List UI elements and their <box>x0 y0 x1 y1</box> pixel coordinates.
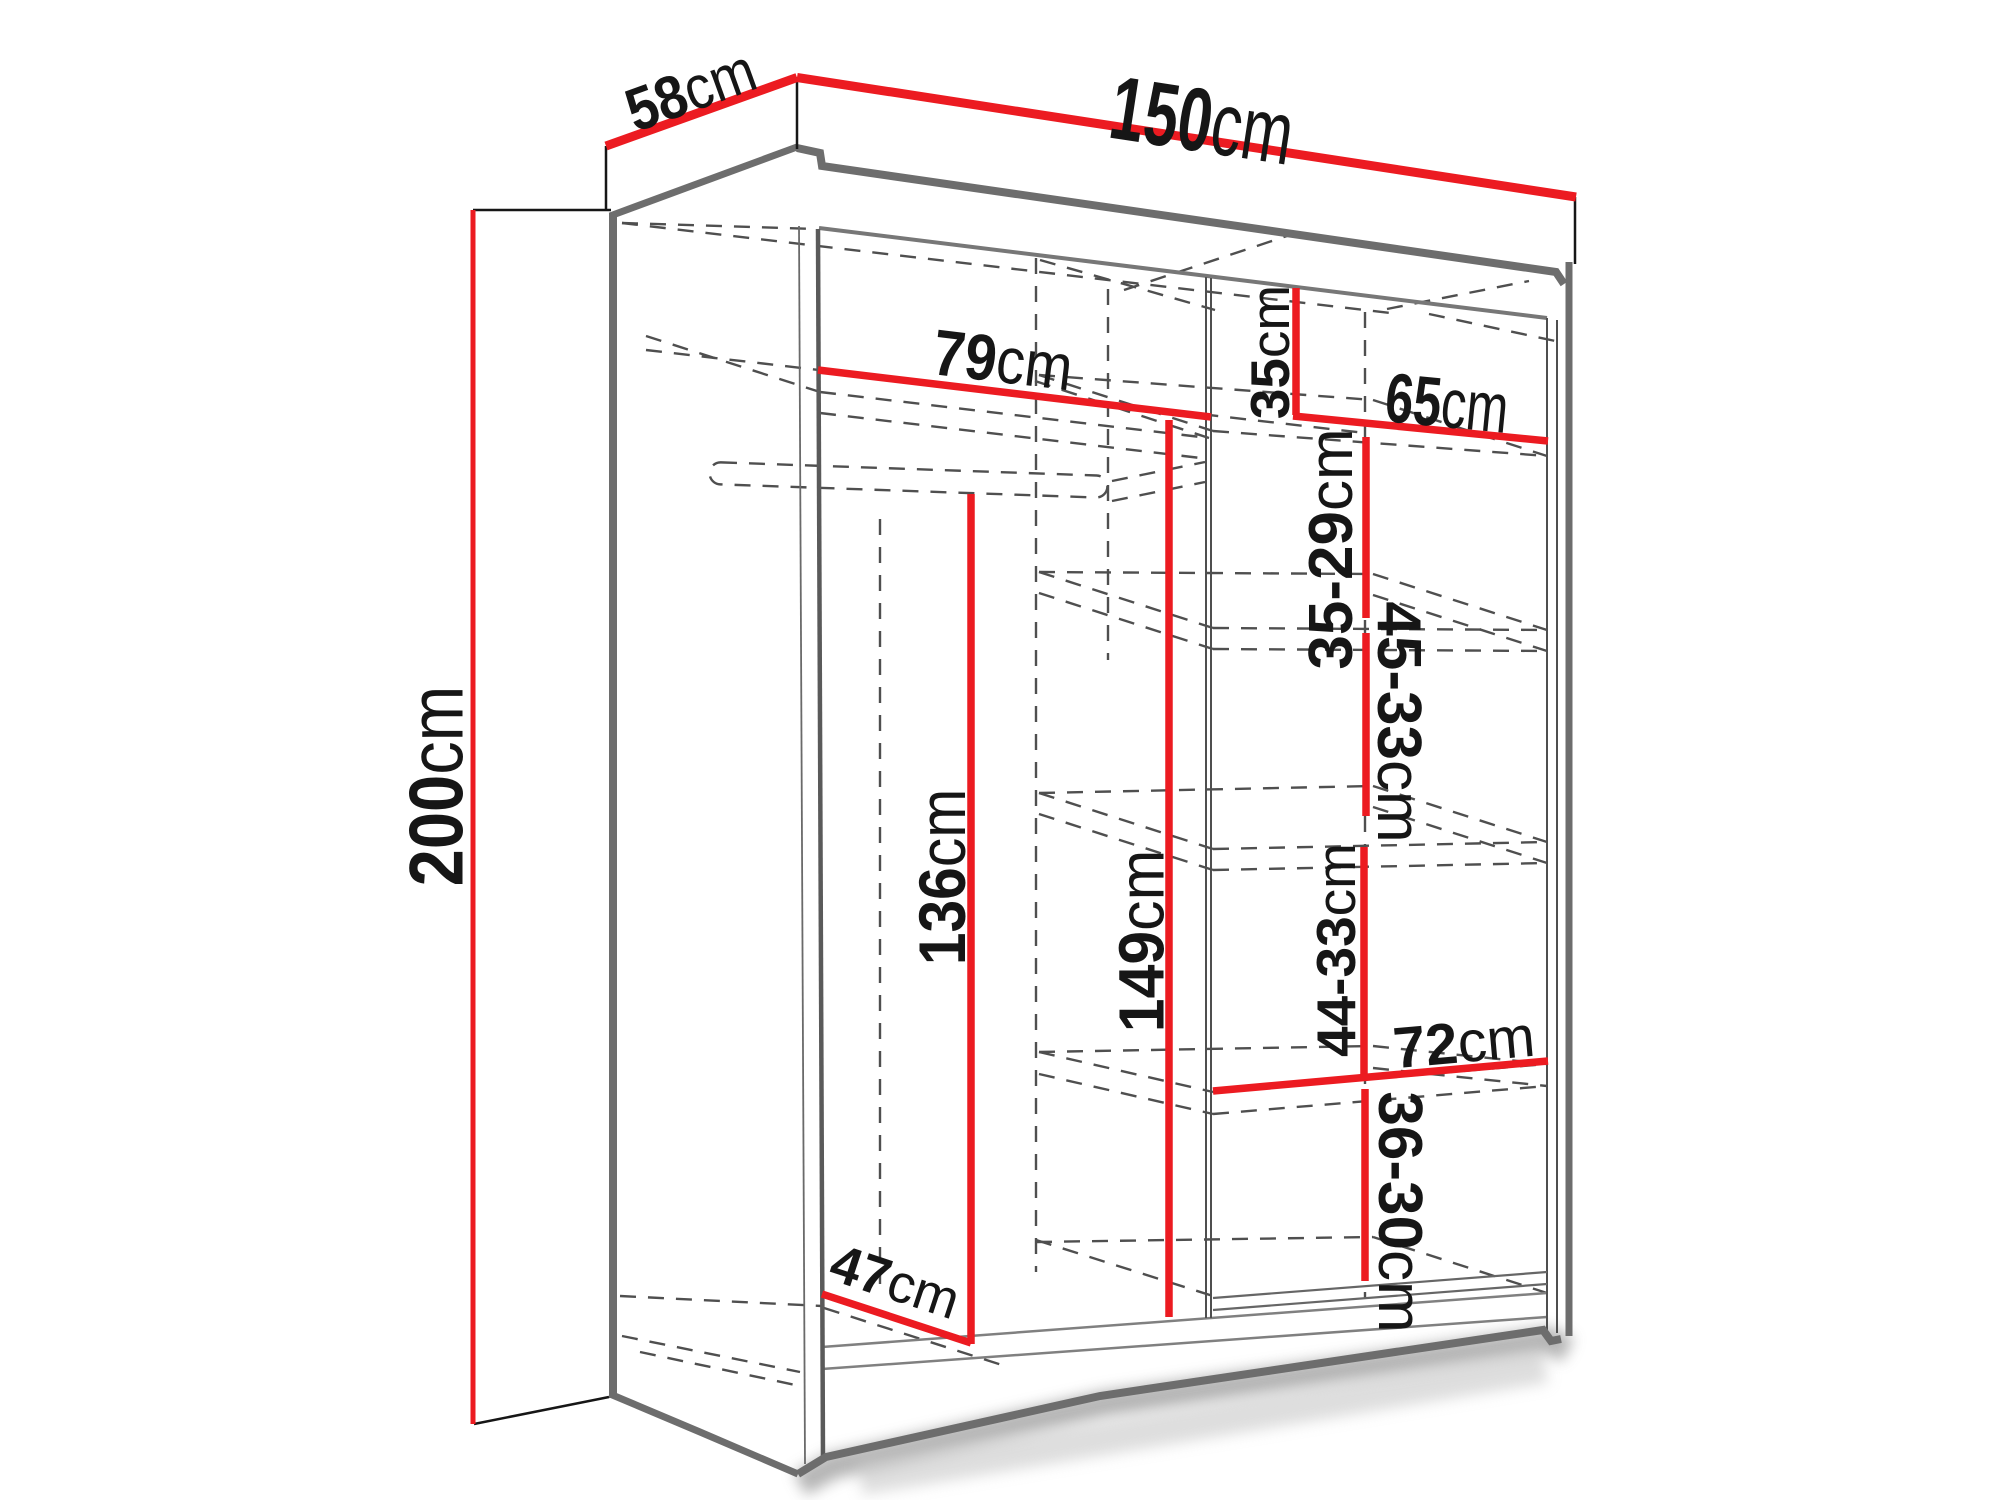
svg-text:200cm: 200cm <box>395 686 480 887</box>
svg-text:149cm: 149cm <box>1106 850 1178 1032</box>
svg-text:35cm: 35cm <box>1239 285 1301 420</box>
svg-text:35-29cm: 35-29cm <box>1297 428 1366 669</box>
svg-text:36-30cm: 36-30cm <box>1366 1091 1435 1332</box>
svg-text:65cm: 65cm <box>1382 358 1512 448</box>
svg-text:72cm: 72cm <box>1390 1003 1537 1080</box>
svg-text:45-33cm: 45-33cm <box>1365 601 1434 842</box>
svg-text:136cm: 136cm <box>906 789 980 965</box>
svg-text:44-33cm: 44-33cm <box>1305 843 1367 1057</box>
